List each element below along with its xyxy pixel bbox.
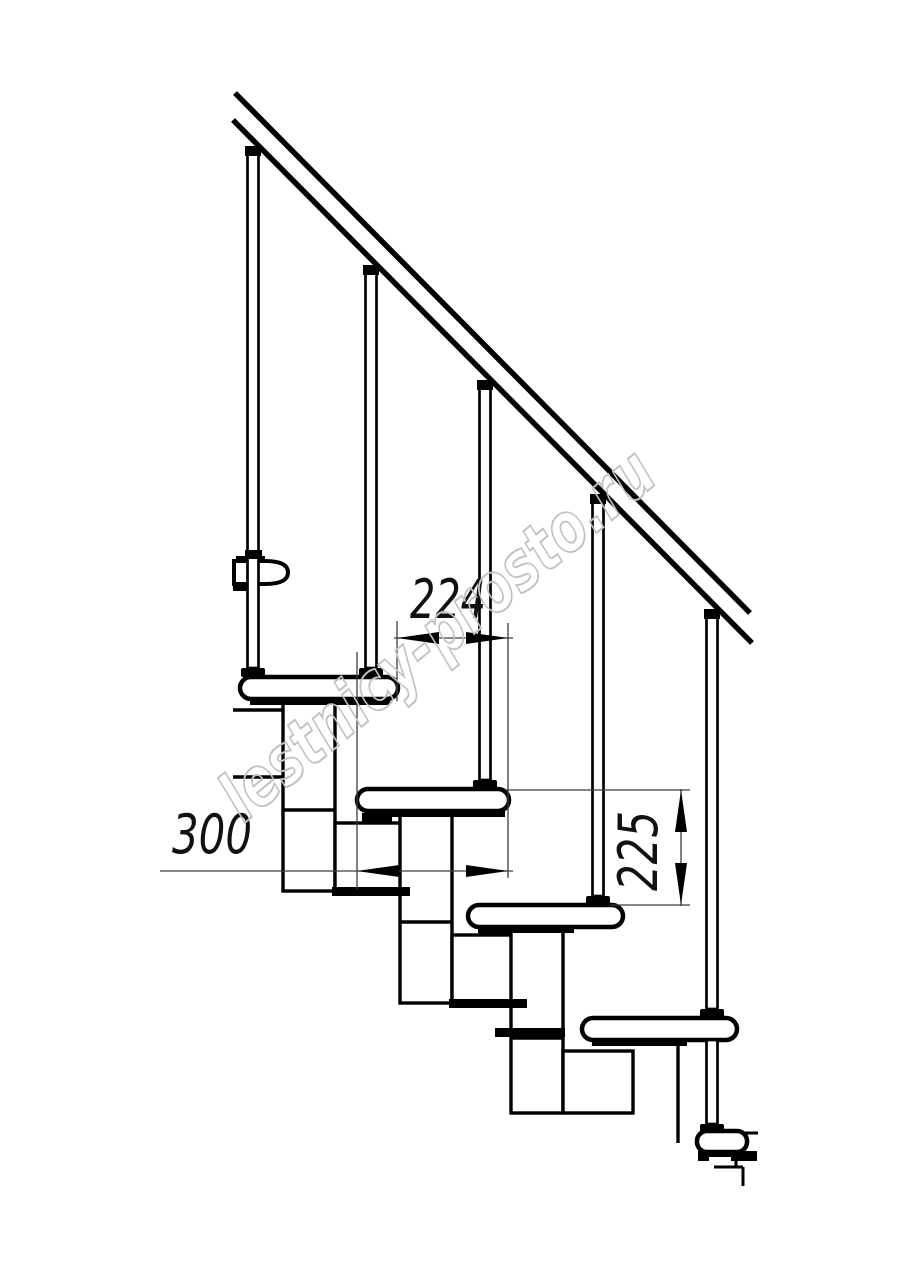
plate-under-tread-4 [478,926,574,933]
baluster-3-foot [473,780,497,789]
stringer-sidebox-2 [335,823,405,891]
tread-3 [357,789,509,811]
baluster-4-foot [586,896,610,905]
baluster-5 [700,609,724,1133]
baluster-1-slab-collar [245,550,262,559]
tread-1 [234,561,288,584]
plate-column-4-bottom [495,1028,565,1037]
stringer-sidebox-4 [563,1051,633,1113]
baluster-4-shaft [593,500,604,896]
tread-4 [468,905,623,927]
staircase-drawing: 224 300 225 lestnicy-prosto.ru [0,0,914,1280]
plate-under-tread-5 [592,1039,687,1046]
tread-6-partial [697,1131,747,1152]
baluster-1-foot [241,668,265,677]
plate-under-tread-6-notch [709,1157,731,1163]
baluster-1 [241,146,265,677]
riser-arrow-bottom [675,863,687,905]
baluster-5-shaft [707,615,718,1009]
plate-under-tread-3 [367,810,505,817]
plate-sidebox-3-bottom [449,999,527,1008]
baluster-5-lower-shaft [707,1040,718,1124]
stringer-column-3 [400,812,452,1003]
stringer-column-4 [511,928,563,1113]
plate-sidebox-2-bottom [332,887,410,896]
baluster-2 [359,265,383,677]
tread-5 [582,1018,737,1040]
riser-arrow-top [675,790,687,832]
baluster-1-shaft [248,152,259,668]
depth-arrow-right [466,865,508,877]
technical-drawing-page: 224 300 225 lestnicy-prosto.ru [0,0,914,1280]
riser-value: 225 [607,811,670,891]
baluster-5-foot [700,1009,724,1018]
baluster-2-shaft [366,271,377,668]
handrail-top-line [235,93,750,613]
baluster-5-lower-foot [700,1124,724,1133]
